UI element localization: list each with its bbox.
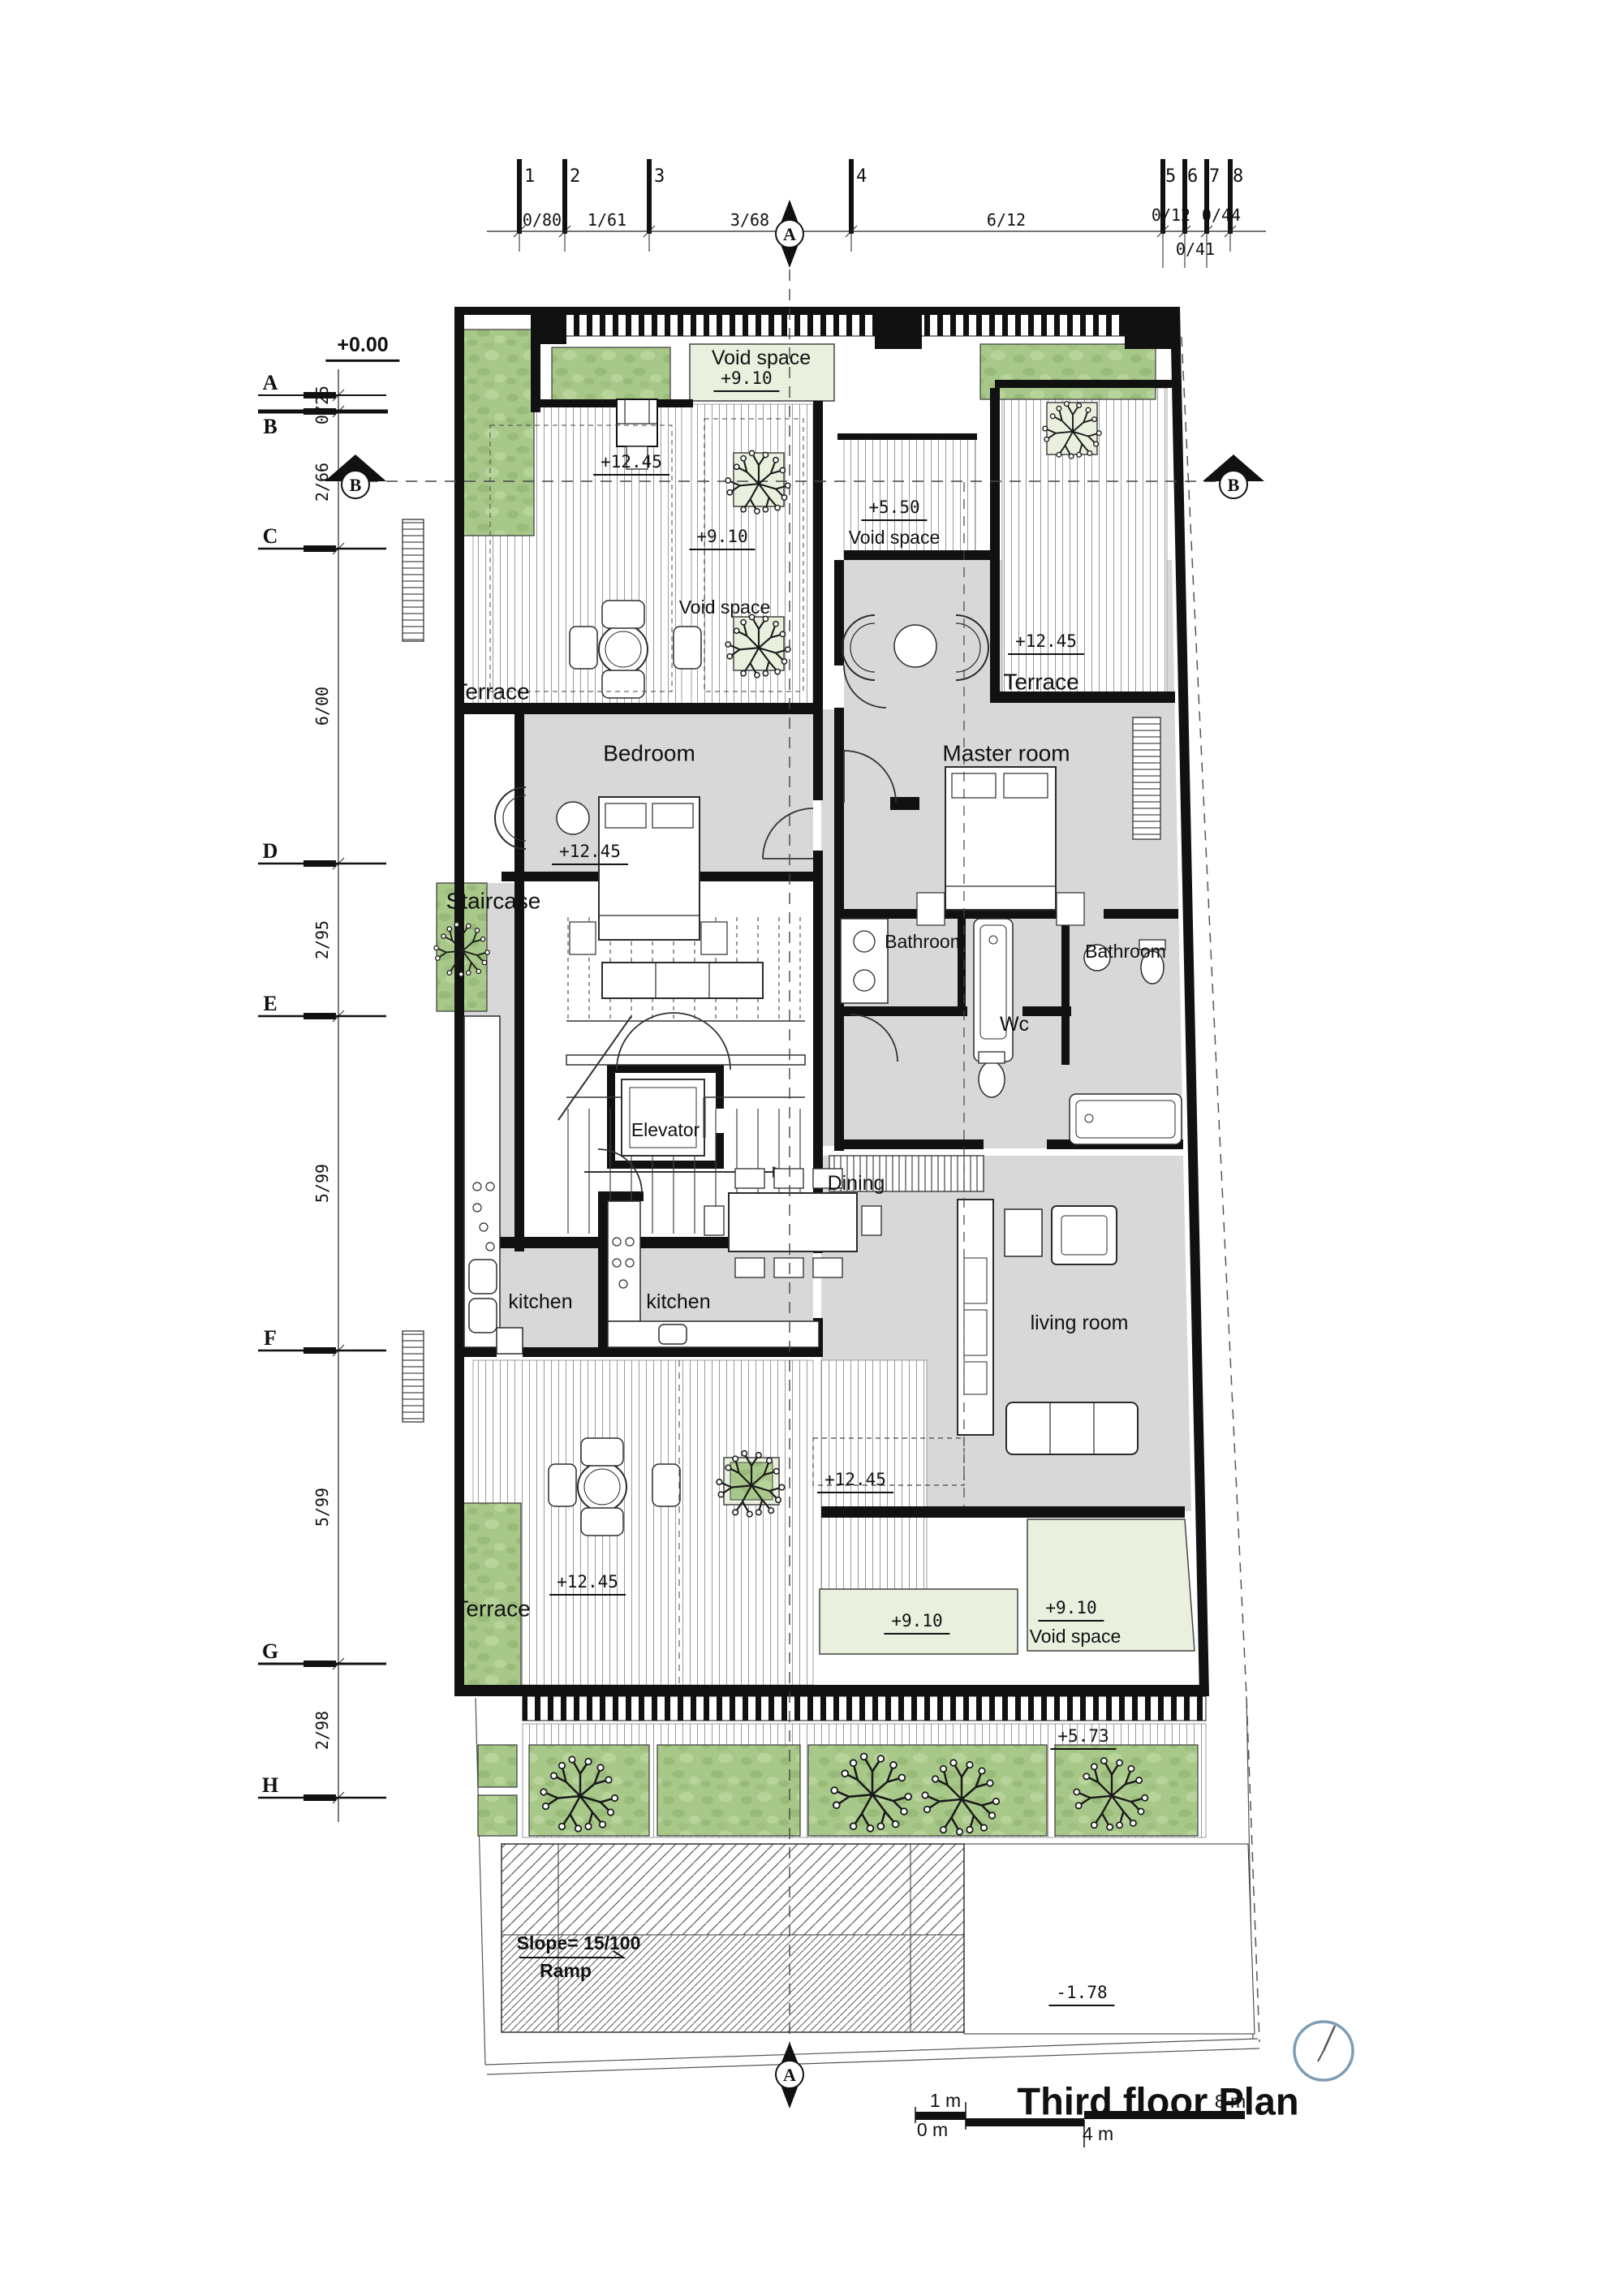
level-573: +5.73 xyxy=(1050,1727,1116,1750)
left-dim-2-66: 2/66 xyxy=(312,463,332,502)
top-dim-1-61: 1/61 xyxy=(588,210,626,230)
floor-plan-page: 1 2 3 4 5 6 7 8 0/80 1/61 3/68 6/12 0/12… xyxy=(0,0,1623,2296)
grid-letter-b: B xyxy=(263,415,277,438)
label-terrace-top-left: Terrace xyxy=(454,679,529,703)
level-minus-178: -1.78 xyxy=(1048,1984,1114,2006)
ramp-slope-label: Slope= 15/100 xyxy=(517,1933,641,1953)
label-bedroom: Bedroom xyxy=(603,741,695,765)
ramp-label: Ramp xyxy=(540,1961,592,1980)
grid-letter-a: A xyxy=(263,371,278,394)
left-dim-6-00: 6/00 xyxy=(312,687,332,726)
left-dim-0-25: 0/25 xyxy=(312,386,332,424)
grid-number-6: 6 xyxy=(1187,166,1198,187)
top-dim-0-12: 0/12 xyxy=(1152,205,1190,225)
level-550: +5.50 xyxy=(861,498,927,521)
level-1245-terrace-right: +12.45 xyxy=(1008,632,1084,655)
label-terrace-top-right: Terrace xyxy=(1003,670,1078,693)
section-a-top-icon: A xyxy=(783,224,796,244)
elevator-graphic xyxy=(622,1079,704,1156)
plan-canvas: 1 2 3 4 5 6 7 8 0/80 1/61 3/68 6/12 0/12… xyxy=(0,0,1623,2296)
grid-letter-d: D xyxy=(263,839,278,863)
label-living-room: living room xyxy=(1031,1312,1129,1333)
label-terrace-bottom: Terrace xyxy=(454,1596,530,1620)
level-910-tree: +9.10 xyxy=(689,528,755,550)
left-axis: A B C D E F G H 0/25 2/66 6/00 2/95 5/99… xyxy=(258,369,388,1822)
label-void-space-1: Void space xyxy=(712,347,811,368)
label-dining: Dining xyxy=(828,1173,885,1194)
label-kitchen-2: kitchen xyxy=(646,1291,710,1312)
top-dim-0-41: 0/41 xyxy=(1176,239,1215,259)
scale-0m-label: 0 m xyxy=(917,2120,948,2139)
top-axis: 1 2 3 4 5 6 7 8 0/80 1/61 3/68 6/12 0/12… xyxy=(487,159,1266,268)
label-master-room: Master room xyxy=(942,741,1070,765)
scale-4m-label: 4 m xyxy=(1083,2124,1113,2143)
level-1245-terrace-bottom: +12.45 xyxy=(549,1573,626,1596)
level-1245-living: +12.45 xyxy=(817,1471,893,1493)
left-dim-5-99-b: 5/99 xyxy=(312,1488,332,1527)
label-bathroom-2: Bathroom xyxy=(1085,941,1166,961)
label-elevator: Elevator xyxy=(631,1120,700,1139)
drawing-title: Third floor Plan xyxy=(1017,2081,1298,2121)
grid-letter-e: E xyxy=(263,992,277,1015)
level-910-top: +9.10 xyxy=(713,369,779,392)
left-dim-2-95: 2/95 xyxy=(312,920,332,959)
grid-letter-f: F xyxy=(264,1326,277,1350)
grid-letter-c: C xyxy=(263,524,278,548)
grid-number-1: 1 xyxy=(524,166,535,187)
grid-letter-g: G xyxy=(262,1639,278,1663)
label-bathroom-1: Bathroom xyxy=(885,932,966,951)
section-b-right-icon: B xyxy=(1228,475,1240,495)
top-dim-6-12: 6/12 xyxy=(987,210,1026,230)
grid-number-2: 2 xyxy=(570,166,580,187)
section-b-left-icon: B xyxy=(350,475,362,495)
scale-8m-label: 8 m xyxy=(1215,2091,1246,2111)
level-1245-roof: +12.45 xyxy=(593,453,669,476)
top-dim-0-80: 0/80 xyxy=(523,210,562,230)
clock-icon xyxy=(1294,2022,1353,2080)
label-void-space-3: Void space xyxy=(679,597,771,617)
grid-letter-h: H xyxy=(262,1773,278,1797)
top-dim-3-68: 3/68 xyxy=(730,210,769,230)
left-dim-5-99-a: 5/99 xyxy=(312,1164,332,1203)
level-910-void-bottom: +9.10 xyxy=(1038,1599,1104,1622)
datum-level-label: +0.00 xyxy=(325,334,399,362)
grid-number-5: 5 xyxy=(1165,166,1176,187)
level-1245-bedroom: +12.45 xyxy=(552,842,628,865)
label-staircase: Staircase xyxy=(446,889,541,912)
grid-number-8: 8 xyxy=(1233,166,1243,187)
level-910-strip: +9.10 xyxy=(884,1612,949,1635)
grid-number-4: 4 xyxy=(856,166,867,187)
label-kitchen-1: kitchen xyxy=(508,1291,572,1312)
left-dim-2-98: 2/98 xyxy=(312,1711,332,1750)
label-void-space-4: Void space xyxy=(1030,1626,1121,1646)
section-a-bottom-icon: A xyxy=(783,2065,796,2085)
label-wc: Wc xyxy=(1000,1014,1029,1035)
grid-number-7: 7 xyxy=(1209,166,1220,187)
grid-number-3: 3 xyxy=(654,166,665,187)
top-dim-0-44: 0/44 xyxy=(1202,205,1241,225)
label-void-space-2: Void space xyxy=(849,528,941,547)
scale-1m-label: 1 m xyxy=(930,2091,961,2110)
